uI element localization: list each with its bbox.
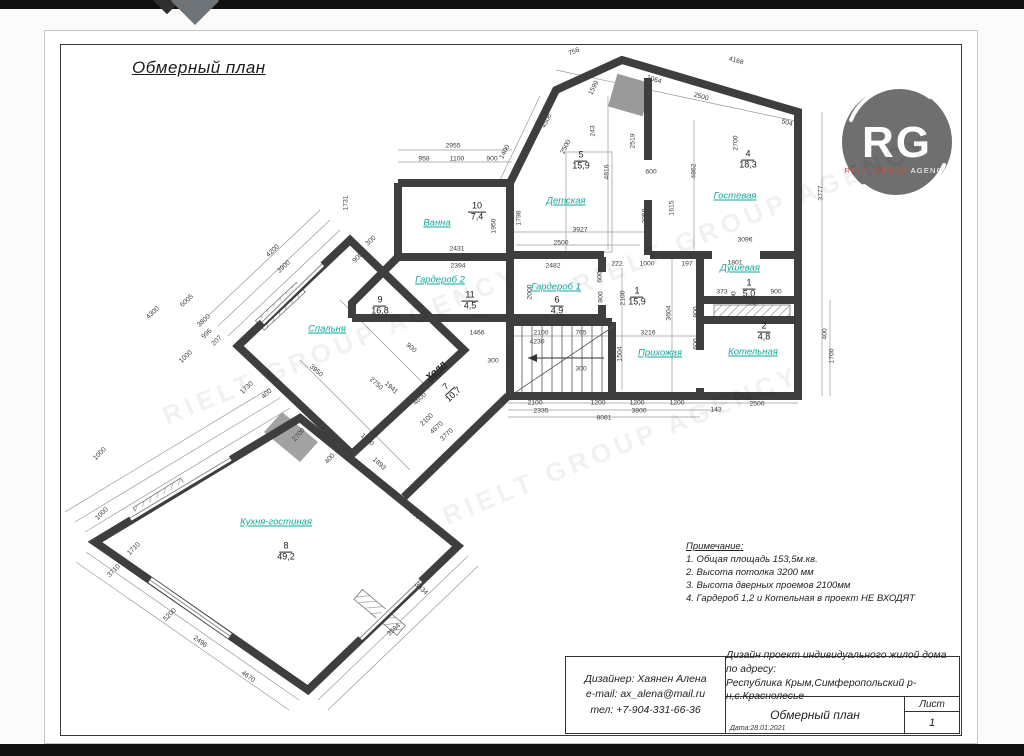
logo-line2: AGENCY	[908, 166, 950, 175]
sheet-cell: Лист 1	[905, 697, 959, 733]
doc-title: Обмерный план	[770, 708, 860, 722]
sheet-number: 1	[905, 712, 959, 733]
date-label: Дата:28.01.2021	[730, 725, 785, 732]
note-line: 2. Высота потолка 3200 мм	[686, 566, 956, 579]
designer-line: тел: +7-904-331-66-36	[590, 703, 700, 718]
designer-line: e-mail: ax_alena@mail.ru	[586, 687, 705, 702]
floor-plan-svg: RG RIELT GROUP AGENCY	[0, 0, 1024, 756]
project-address: Дизайн проект индивидуального жилой дома…	[726, 657, 959, 697]
doc-title-cell: Обмерный план Дата:28.01.2021	[726, 697, 905, 733]
logo-subtitle: RIELT GROUP AGENCY	[845, 166, 950, 175]
notes-block: Примечание: 1. Общая площадь 153,5м.кв. …	[686, 540, 956, 606]
notes-heading: Примечание:	[686, 540, 956, 553]
project-line: Дизайн проект индивидуального жилой дома…	[726, 649, 959, 677]
designer-line: Дизайнер: Хаянен Алена	[584, 672, 706, 687]
logo-initials: RG	[862, 118, 932, 167]
sheet-label: Лист	[905, 697, 959, 712]
note-line: 1. Общая площадь 153,5м.кв.	[686, 553, 956, 566]
note-line: 4. Гардероб 1,2 и Котельная в проект НЕ …	[686, 592, 956, 605]
dimension-lines	[65, 70, 830, 710]
logo-line1: RIELT GROUP	[845, 166, 908, 175]
rg-logo: RG RIELT GROUP AGENCY	[842, 87, 952, 197]
designer-cell: Дизайнер: Хаянен Алена e-mail: ax_alena@…	[566, 657, 726, 733]
bottom-bar	[0, 744, 1024, 756]
screenshot-stage: Обмерный план	[0, 0, 1024, 756]
note-line: 3. Высота дверных проемов 2100мм	[686, 579, 956, 592]
title-block: Дизайнер: Хаянен Алена e-mail: ax_alena@…	[565, 656, 960, 734]
project-cell: Дизайн проект индивидуального жилой дома…	[726, 657, 959, 733]
